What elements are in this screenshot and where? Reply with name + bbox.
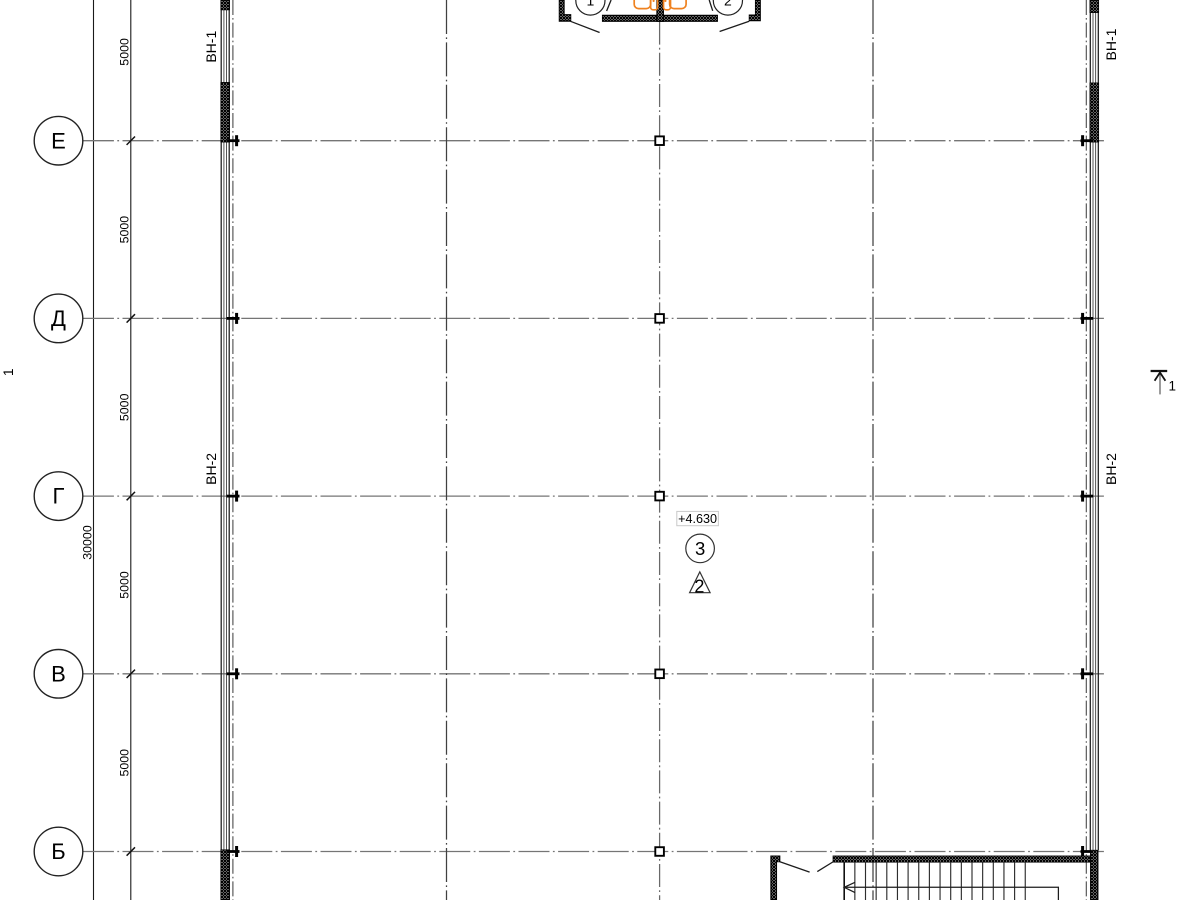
svg-text:2: 2	[724, 0, 732, 9]
svg-text:Г: Г	[53, 484, 65, 509]
svg-text:ВН-1: ВН-1	[1103, 28, 1119, 60]
svg-text:5000: 5000	[118, 749, 132, 777]
svg-text:1: 1	[587, 0, 595, 9]
svg-text:Б: Б	[51, 839, 65, 864]
svg-text:ВН-1: ВН-1	[203, 31, 219, 63]
svg-text:1: 1	[1, 369, 16, 377]
svg-text:3: 3	[695, 538, 705, 559]
svg-text:2: 2	[694, 576, 704, 596]
svg-text:1: 1	[1169, 379, 1177, 394]
svg-text:5000: 5000	[118, 38, 132, 66]
svg-text:ВН-2: ВН-2	[1103, 453, 1119, 485]
svg-text:Е: Е	[51, 128, 66, 153]
svg-text:5000: 5000	[118, 393, 132, 421]
svg-text:В: В	[51, 661, 66, 686]
svg-text:5000: 5000	[118, 571, 132, 599]
svg-text:30000: 30000	[80, 525, 94, 560]
svg-text:5000: 5000	[118, 216, 132, 244]
svg-text:ВН-2: ВН-2	[203, 453, 219, 485]
svg-text:+4.630: +4.630	[678, 512, 717, 526]
svg-text:Д: Д	[51, 306, 66, 331]
